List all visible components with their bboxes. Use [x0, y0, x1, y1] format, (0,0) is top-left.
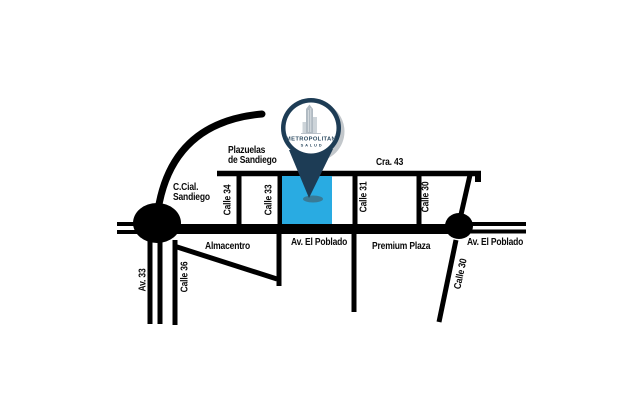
- label-almacentro: Almacentro: [205, 242, 250, 252]
- roundabout-east: [445, 213, 473, 239]
- location-map: METROPOLITAN SALUD Plazuelas de Sandiego…: [0, 0, 640, 414]
- road-cra-43-connector: [460, 175, 470, 219]
- roundabout-west: [133, 203, 181, 243]
- label-ccial-sandiego: C.Cial. Sandiego: [173, 183, 210, 202]
- label-calle-33: Calle 33: [264, 185, 275, 216]
- pin-brand-subtext: SALUD: [301, 143, 324, 148]
- label-av-el-poblado-center: Av. El Poblado: [291, 238, 347, 248]
- map-roads-layer: METROPOLITAN SALUD: [0, 0, 640, 414]
- label-ccial-line2: Sandiego: [173, 193, 210, 203]
- label-cra-43: Cra. 43: [376, 158, 403, 168]
- pin-tip-shadow: [303, 196, 323, 203]
- label-calle-36: Calle 36: [180, 262, 191, 293]
- label-plazuelas-de-sandiego: Plazuelas de Sandiego: [228, 146, 277, 165]
- label-calle-30-north: Calle 30: [421, 182, 432, 213]
- label-premium-plaza: Premium Plaza: [372, 242, 430, 252]
- label-av-33: Av. 33: [138, 268, 149, 291]
- label-av-el-poblado-east: Av. El Poblado: [467, 238, 523, 248]
- label-plazuelas-line2: de Sandiego: [228, 156, 277, 166]
- label-calle-31: Calle 31: [359, 182, 370, 213]
- label-calle-34: Calle 34: [223, 185, 234, 216]
